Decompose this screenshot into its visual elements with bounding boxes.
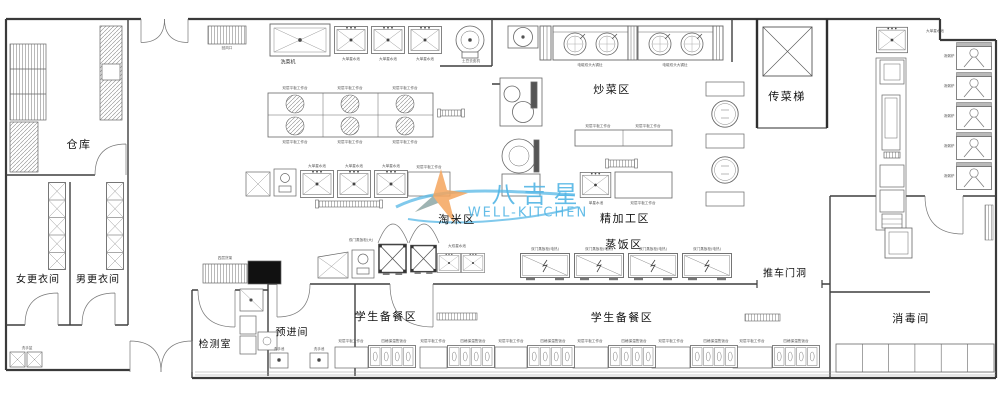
air-vent-grille [208,26,246,44]
equip-label: 双层平板工作台 [337,86,362,91]
equip-label: 洗手池 [314,347,325,352]
equip-label: 电磁双头大锅灶 [577,63,602,68]
zone-label-student-serving-1: 学生备餐区 [355,308,418,324]
equip-label: 双门蒸饭柜(电热) [531,247,559,252]
zone-label-fine-processing: 精加工区 [600,210,650,226]
hand-basins [10,352,42,367]
room-label-pre-entry: 预进间 [276,324,309,339]
kitchen-floor-plan: 仓库 女更衣间 男更衣间 检测室 预进间 淘米区 炒菜区 传菜梯 精加工区 蒸饭… [0,0,1000,402]
rice-washing-units [379,245,485,275]
room-label-women-changing: 女更衣间 [16,271,60,286]
equip-label: 土豆去皮机 [462,59,480,64]
equip-label: 双门蒸饭柜(大) [349,238,373,243]
soup-stove-stack [957,43,992,190]
equip-label: 双层平板工作台 [585,124,610,129]
room-label-warehouse: 仓库 [67,136,92,152]
soup-kettle [712,157,738,183]
equip-label: 汤粥炉 [944,84,955,89]
equip-label: 四格保温售饭台 [703,339,728,344]
room-label-disinfection: 消毒间 [892,310,930,326]
sink-row-2 [246,169,296,196]
pre-entry-hand-sinks [270,353,328,368]
equip-label: 双层平板工作台 [577,339,602,344]
equip-label: 双门蒸饭柜(电热) [693,247,721,252]
mop-sink [318,250,374,278]
equip-label: 大单星水池 [416,57,434,62]
equip-label: 四层货架 [218,256,232,261]
equip-label: 双层平板工作台 [420,339,445,344]
equip-label: 双门蒸饭柜(电热) [585,247,613,252]
equip-label: 双门蒸饭柜(电热) [639,247,667,252]
equip-label: 双层平板工作台 [630,201,655,206]
serving-counter-lines [195,372,996,375]
equip-label: 四格保温售饭台 [540,339,565,344]
sink-unit [301,171,334,198]
potato-peeler-machine [456,26,484,58]
watermark-brand-en: WELL-KITCHEN [468,206,588,221]
equip-label: 大单星水池 [382,164,400,169]
equip-label: 四格保温售饭台 [621,339,646,344]
zone-label-stir-fry: 炒菜区 [593,81,631,97]
equip-label: 大单星水池 [926,29,944,34]
locker-columns [49,183,124,270]
equip-label: 汤粥炉 [944,114,955,119]
equip-label: 双层平板工作台 [282,140,307,145]
center-worktables [268,93,433,137]
equip-label: 大单星水池 [345,164,363,169]
equip-label: 洗手池 [274,347,285,352]
equip-label: 双层平板工作台 [337,140,362,145]
sink-unit [338,171,371,198]
equip-label-washer: 洗菜机 [281,59,296,66]
equip-label: 电磁双头大锅灶 [662,63,687,68]
equip-label: 双层平板工作台 [498,339,523,344]
equip-label: 单星水池 [589,201,603,206]
soup-kettle [712,101,738,127]
wok-range-stations [540,26,723,60]
equip-label: 大单星水池 [308,164,326,169]
sink-unit [375,171,408,198]
equip-label: 双层平板工作台 [392,86,417,91]
room-label-dish-elevator: 传菜梯 [768,88,806,104]
equip-label: 双层平板工作台 [739,339,764,344]
zone-label-student-serving-2: 学生备餐区 [591,309,654,325]
equip-label: 大单星水池 [342,57,360,62]
equip-label: 汤粥炉 [944,174,955,179]
prep-sinks [335,27,442,54]
equip-label: 双层平板工作台 [658,339,683,344]
equip-label: 双层平板工作台 [635,124,660,129]
equip-label: 双层平板工作台 [282,86,307,91]
room-label-inspection: 检测室 [199,336,232,351]
equip-label: 大双星水池 [448,244,466,249]
equip-label: 汤粥炉 [944,144,955,149]
label-cart-door-opening: 推车门洞 [763,265,807,280]
right-top-sink [876,27,907,52]
dough-mixer-station [500,78,542,126]
equip-label: 汤粥炉 [944,54,955,59]
equip-label: 双层平板工作台 [416,165,441,170]
room-label-men-changing: 男更衣间 [76,271,120,286]
equip-label: 洗手盆 [22,346,33,351]
vegetable-washer [270,24,330,56]
equip-label: 双层平板工作台 [338,339,363,344]
fine-processing-sink [580,172,611,197]
round-sink [508,26,538,48]
watermark-brand-cn: 八吉星 [492,175,585,210]
steam-cabinet-row [521,254,732,281]
dish-elevator-box [763,27,812,76]
equip-label: 四格保温售饭台 [783,339,808,344]
equip-label: 回风口 [222,46,233,51]
disinfection-fittings [836,205,994,372]
cart-door-jambs [757,280,822,288]
equip-label: 四格保温售饭台 [460,339,485,344]
right-counter-strip [876,58,906,230]
equip-label: 四格保温售饭台 [381,339,406,344]
equip-label: 大单星水池 [379,57,397,62]
equip-label: 双层平板工作台 [392,140,417,145]
